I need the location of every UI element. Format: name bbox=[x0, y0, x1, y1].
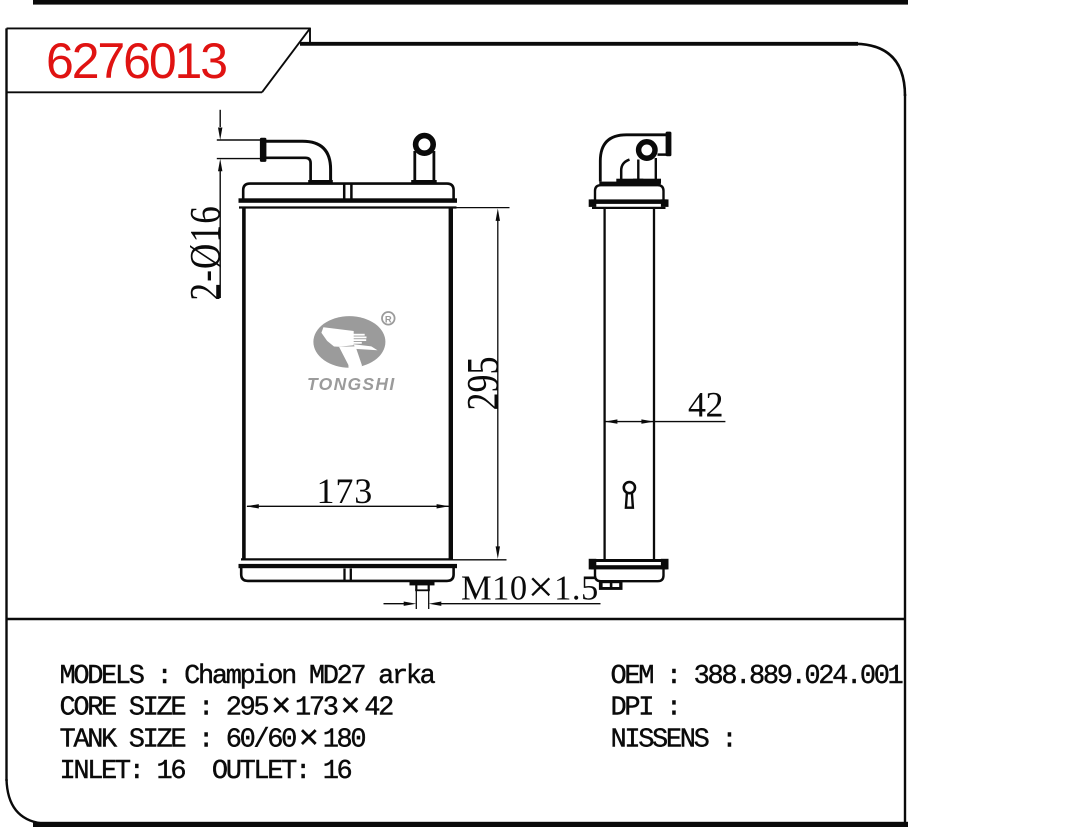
svg-text:R: R bbox=[385, 314, 392, 325]
svg-text:TANK SIZE : 60/60×180: TANK SIZE : 60/60×180 bbox=[60, 721, 366, 759]
svg-text:6276013: 6276013 bbox=[46, 33, 226, 89]
svg-text:M10×1.5: M10×1.5 bbox=[461, 561, 599, 612]
svg-text:TONGSHI: TONGSHI bbox=[307, 374, 396, 394]
svg-text:2-Ø16: 2-Ø16 bbox=[181, 205, 230, 300]
svg-text:INLET: 16 OUTLET: 16: INLET: 16 OUTLET: 16 bbox=[60, 757, 352, 787]
svg-text:295: 295 bbox=[458, 357, 508, 411]
svg-text:173: 173 bbox=[317, 471, 374, 511]
svg-text:OEM : 388.889.024.001: OEM : 388.889.024.001 bbox=[611, 662, 903, 692]
svg-text:42: 42 bbox=[688, 385, 723, 425]
svg-text:MODELS : Champion MD27 arka: MODELS : Champion MD27 arka bbox=[60, 662, 436, 692]
svg-text:DPI :: DPI : bbox=[611, 694, 694, 724]
svg-text:NISSENS :: NISSENS : bbox=[611, 725, 750, 755]
svg-text:CORE SIZE : 295×173×42: CORE SIZE : 295×173×42 bbox=[60, 690, 394, 728]
